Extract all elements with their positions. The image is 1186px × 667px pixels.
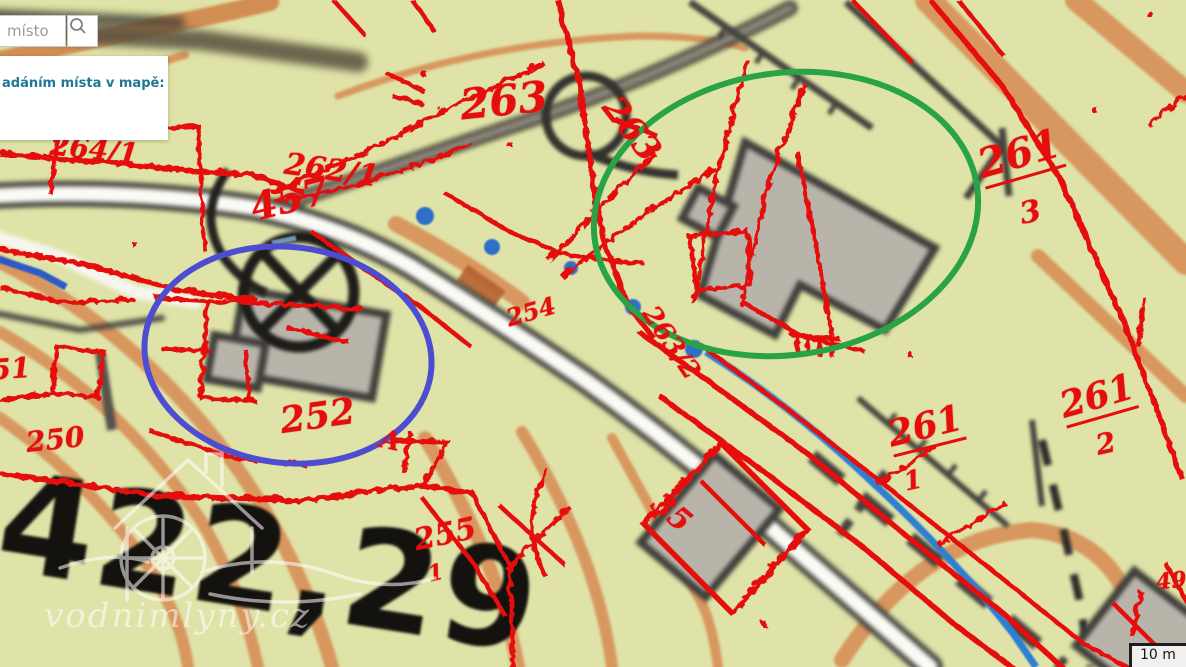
cadastre-overlay-layer	[0, 0, 1186, 667]
map-hint-text: adáním místa v mapě:	[2, 76, 162, 91]
magnifier-icon	[68, 16, 88, 36]
search-button[interactable]	[67, 15, 98, 47]
scale-bar-label: 10 m	[1140, 647, 1176, 663]
search-input[interactable]	[0, 15, 66, 47]
map-hint-panel: adáním místa v mapě:	[0, 56, 168, 140]
blue-annotation-ellipse	[132, 230, 444, 479]
scale-bar: 10 m	[1129, 643, 1186, 667]
map-viewport[interactable]: 422,29	[0, 0, 1186, 667]
cadastre-red-lines	[0, 0, 1186, 667]
